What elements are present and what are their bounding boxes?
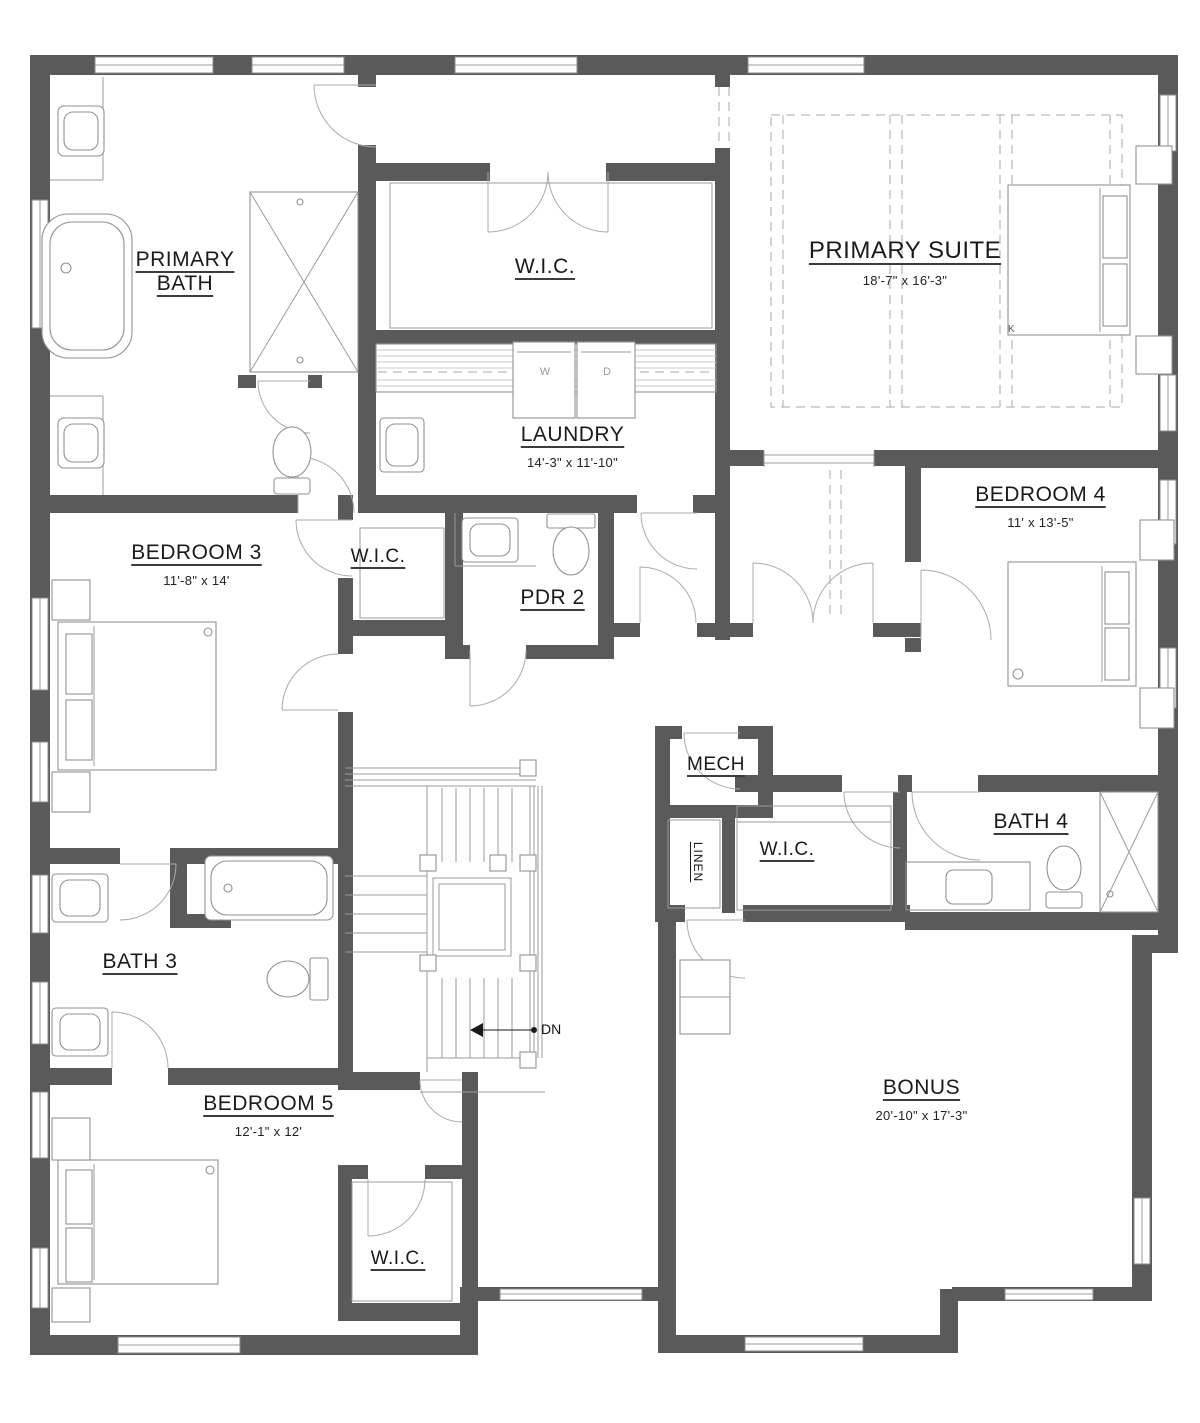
down-arrow-icon [470,1023,537,1037]
room-label-bedroom-5: BEDROOM 5 12'-1" x 12' [176,1092,361,1139]
toilet-fixture [547,514,595,575]
washer-label: W [536,366,554,378]
sink-fixture [462,518,518,562]
bedroom3-furniture [52,580,216,812]
floor-plan: PRIMARY BATH W.I.C. PRIMARY SUITE 18'-7"… [0,0,1200,1423]
nightstand [1140,520,1174,560]
sink-fixture [380,418,424,472]
sink-fixture [52,874,108,922]
room-label-bonus: BONUS 20'-10" x 17'-3" [834,1076,1009,1123]
shower [1100,792,1158,912]
bed-furniture [58,622,216,770]
bonus-cabinet [680,960,730,1034]
nightstand [52,772,90,812]
room-label-wic-primary: W.I.C. [495,255,595,279]
nightstand [52,1118,90,1160]
room-label-primary-bath: PRIMARY BATH [125,248,245,296]
washer-appliance [513,342,575,418]
bath3-fixtures [52,856,333,1056]
room-label-bedroom-3: BEDROOM 3 11'-8" x 14' [104,541,289,588]
toilet-fixture [267,958,328,1000]
sink-fixture [58,106,104,156]
bathtub [205,856,333,920]
sink-fixture [58,418,104,468]
room-label-wic-bedroom5: W.I.C. [360,1248,436,1270]
stair-newel-posts [420,760,536,1068]
shower [250,192,358,372]
room-label-bedroom-4: BEDROOM 4 11' x 13'-5" [948,483,1133,530]
room-label-wic-bedroom3: W.I.C. [342,546,414,568]
room-label-linen: LINEN [691,832,705,892]
dryer-label: D [598,366,616,378]
nightstand [1140,688,1174,728]
sink-fixture [946,870,992,904]
room-label-bath-4: BATH 4 [988,810,1074,834]
nightstand [1136,336,1172,374]
room-label-wic-bedroom4: W.I.C. [750,839,824,861]
sink-fixture [52,1008,108,1056]
dryer-appliance [577,342,635,418]
room-label-primary-suite: PRIMARY SUITE 18'-7" x 16'-3" [775,237,1035,288]
bed-size-label: K [1008,324,1015,335]
bed-furniture [58,1160,218,1284]
powder-room-fixtures [455,513,595,575]
room-label-mech: MECH [677,754,755,776]
bed-furniture [1008,562,1136,686]
bedroom4-furniture [1008,520,1174,728]
room-label-laundry: LAUNDRY 14'-3" x 11'-10" [490,423,655,470]
nightstand [1136,146,1172,184]
stairs-down-label: DN [541,1021,561,1037]
nightstand [52,1288,90,1322]
floor-plan-drawing [0,0,1200,1423]
staircase [345,760,545,1092]
bedroom5-furniture [52,1118,218,1322]
toilet-fixture [273,427,311,494]
toilet-fixture [1046,846,1082,908]
room-label-bath-3: BATH 3 [96,950,184,974]
nightstand [52,580,90,620]
room-label-pdr-2: PDR 2 [510,586,595,610]
freestanding-tub [42,214,132,358]
